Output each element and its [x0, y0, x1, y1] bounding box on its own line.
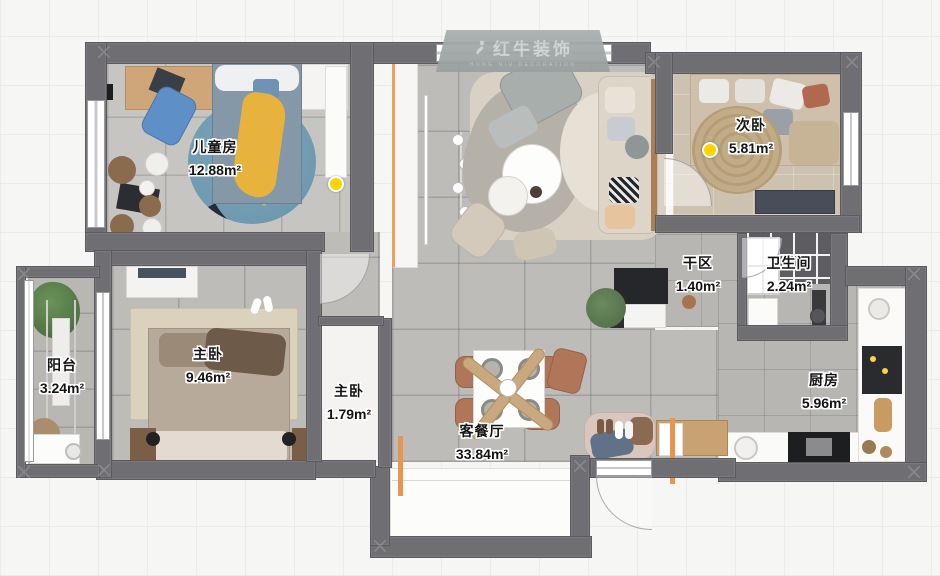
kids-bed[interactable] [212, 62, 302, 204]
wall-corner-mark [908, 466, 920, 478]
entry-door-swing [596, 476, 652, 530]
wall-corner-mark [18, 268, 30, 280]
kitchen-stove[interactable] [788, 432, 850, 462]
dry-area-plant[interactable] [586, 288, 626, 328]
room-name: 阳台 [22, 358, 102, 373]
kids-drum-4[interactable] [139, 195, 161, 217]
bay-window-floor [390, 468, 572, 538]
master-lamp-right[interactable] [282, 432, 296, 446]
wall-kitchen-bottom [718, 462, 927, 482]
wall-master-bottom [96, 460, 316, 480]
kitchen-cutting-board[interactable] [874, 398, 892, 432]
wall-corner-mark [574, 460, 586, 472]
room-label-bathroom[interactable]: 卫生间 2.24m² [745, 256, 833, 294]
wall-kids-bottom [85, 232, 325, 252]
entry-door-leaf[interactable] [596, 460, 652, 476]
room-area: 33.84m² [437, 447, 527, 462]
wall-corner-mark [374, 540, 386, 552]
sofa-pillow-1 [605, 87, 635, 113]
entry-shoe-3 [597, 419, 604, 434]
kitchen-stove-grate [806, 438, 832, 456]
room-area: 9.46m² [168, 370, 248, 385]
sofa-pillow-striped [609, 177, 639, 203]
floor-plan-canvas: SPACE ★ ★ [0, 0, 940, 576]
entry-bench[interactable] [584, 412, 656, 460]
room-name: 次卧 [706, 118, 796, 133]
bedroom2-dresser[interactable] [755, 190, 835, 214]
room-name: 主卧 [314, 384, 384, 399]
kitchen-sink[interactable] [734, 436, 758, 460]
bedroom2-pillow-accent [801, 83, 830, 109]
kids-window [87, 100, 105, 228]
room-name: 客餐厅 [437, 424, 527, 439]
wall-corner-mark [18, 466, 30, 478]
bay-window-frame-line [392, 480, 570, 481]
wall-closet-top [318, 316, 384, 326]
wall-closet-bottom [310, 460, 376, 478]
room-label-kids-room[interactable]: 儿童房 12.88m² [165, 140, 265, 178]
kids-wardrobe[interactable] [325, 66, 347, 178]
kitchen-appliance-dark[interactable] [862, 346, 902, 394]
wall-bay-left [370, 466, 390, 546]
room-area: 1.40m² [658, 279, 738, 294]
bedroom2-pillow-2 [735, 79, 765, 103]
brand-subtitle: HONG NIU DECORATION [470, 62, 577, 68]
kitchen-jar-1 [862, 440, 876, 454]
kitchen-side-sink [868, 298, 890, 320]
shower-head [810, 308, 826, 324]
entry-shoe-1 [615, 421, 623, 439]
wall-bay-bottom [370, 536, 592, 558]
open-door-panel-2[interactable] [398, 436, 403, 496]
wall-kitchen-right [905, 266, 927, 482]
master-lamp-left[interactable] [146, 432, 160, 446]
wall-corner-mark [98, 464, 110, 476]
wall-master-top [98, 250, 310, 266]
coffee-table-decor [530, 186, 542, 198]
hongniu-logo-icon [473, 40, 488, 55]
room-name: 儿童房 [165, 140, 265, 155]
brand-watermark: 红牛装饰 HONG NIU DECORATION [436, 30, 610, 72]
room-label-master-closet[interactable]: 主卧 1.79m² [314, 384, 384, 422]
room-name: 厨房 [784, 373, 864, 388]
sofa-pillow-round [625, 135, 649, 159]
bedroom2-blanket [789, 121, 839, 165]
wall-corner-mark [846, 56, 858, 68]
kitchen-jar-2 [880, 446, 892, 458]
brand-name: 红牛装饰 [493, 35, 573, 60]
washing-machine[interactable] [30, 434, 80, 464]
living-tall-cabinet[interactable] [392, 58, 418, 268]
room-label-dry-area[interactable]: 干区 1.40m² [658, 256, 738, 294]
living-sofa[interactable] [598, 76, 658, 234]
room-area: 5.81m² [706, 141, 796, 156]
light-marker-kids[interactable] [328, 176, 344, 192]
dry-area-knob [682, 295, 696, 309]
room-label-kitchen[interactable]: 厨房 5.96m² [784, 373, 864, 411]
room-label-balcony[interactable]: 阳台 3.24m² [22, 358, 102, 396]
wall-kids-right [350, 42, 374, 252]
kids-drum-3[interactable] [139, 180, 155, 196]
washing-machine-door [65, 443, 82, 460]
entry-shoe-cabinet[interactable] [656, 420, 728, 456]
room-area: 2.24m² [745, 279, 833, 294]
wall-top-right [645, 52, 862, 74]
ceiling-fan-hub[interactable] [499, 379, 517, 397]
appliance-light-1 [870, 356, 876, 362]
room-area: 3.24m² [22, 381, 102, 396]
bedroom2-pillow-1 [699, 79, 729, 103]
master-tv[interactable] [138, 268, 186, 278]
room-name: 干区 [658, 256, 738, 271]
room-area: 5.96m² [784, 396, 864, 411]
track-light-1[interactable] [452, 134, 464, 146]
wall-bedroom2-bottom [655, 215, 860, 233]
room-label-master-bedroom[interactable]: 主卧 9.46m² [168, 347, 248, 385]
wall-bath-bottom [737, 325, 848, 341]
appliance-light-2 [882, 368, 888, 374]
room-label-second-bedroom[interactable]: 次卧 5.81m² [706, 118, 796, 156]
light-marker-bedroom2[interactable] [702, 142, 718, 158]
wall-corner-mark [98, 46, 110, 58]
bedroom2-window [843, 112, 859, 186]
room-area: 12.88m² [165, 163, 265, 178]
track-light-3[interactable] [452, 182, 464, 194]
entry-shoe-4 [606, 419, 613, 434]
sofa-pillow-peach [605, 205, 635, 229]
wall-corner-mark [908, 268, 920, 280]
kids-drum-1[interactable] [108, 156, 136, 184]
room-label-living-dining[interactable]: 客餐厅 33.84m² [437, 424, 527, 462]
room-name: 主卧 [168, 347, 248, 362]
master-bed-foot-bench [151, 431, 287, 461]
living-curtain-track[interactable] [424, 95, 428, 245]
wall-corner-mark [648, 56, 660, 68]
entry-shoe-2 [625, 421, 633, 439]
room-name: 卫生间 [745, 256, 833, 271]
toilet[interactable] [748, 298, 778, 326]
coffee-table-small[interactable] [488, 176, 528, 216]
room-area: 1.79m² [314, 407, 384, 422]
